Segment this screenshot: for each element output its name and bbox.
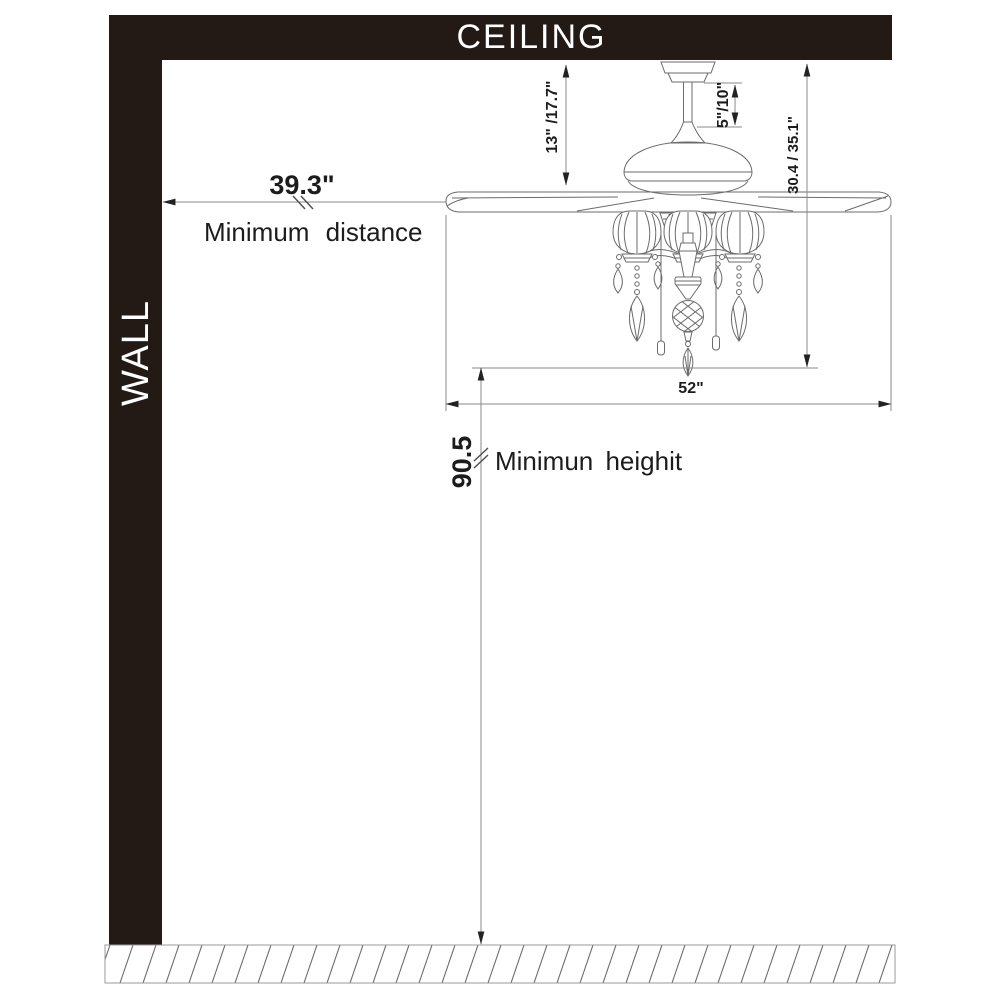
wall-label: WALL [112, 293, 160, 413]
min-height-value: 90.5 [448, 430, 476, 494]
min-distance-value: 39.3" [240, 170, 364, 201]
fan-canopy [661, 62, 715, 143]
ceiling-label: CEILING [109, 15, 892, 60]
floor-hatch [105, 945, 895, 983]
min-height-label: Minimun heighit [495, 446, 682, 477]
diagram-linework [0, 0, 1000, 1000]
crystal-ball [664, 297, 712, 376]
total-height-dimension: 30.4 / 35.1" [784, 109, 802, 201]
fan-blades [446, 192, 891, 212]
downrod-length-dimension: 5"/10" [715, 75, 733, 135]
wall-bar [109, 15, 162, 945]
fan-motor-housing [624, 142, 752, 195]
hanger-height-dimension: 13" /17.7" [543, 72, 563, 162]
min-distance-label: Minimum distance [204, 217, 423, 248]
blade-span-dimension: 52" [661, 380, 721, 398]
fan-installation-diagram: CEILING WALL 39.3" Minimum distance 90.5… [0, 0, 1000, 1000]
fan-light-kit [613, 211, 764, 376]
